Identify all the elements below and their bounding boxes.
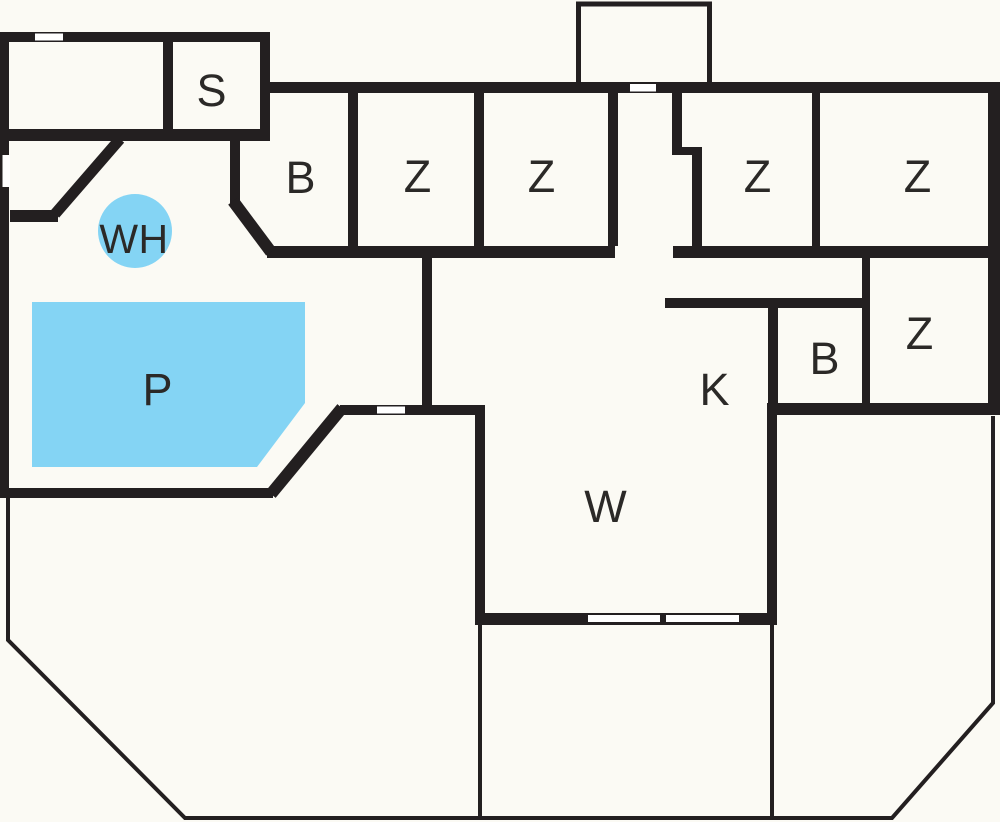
wall [768, 298, 778, 415]
wall [665, 298, 870, 308]
window-gap-living-right [666, 615, 739, 622]
wall [672, 93, 682, 155]
wall [692, 147, 702, 258]
room-label-z-right: Z [906, 308, 935, 359]
room-label-b-right: B [809, 333, 840, 384]
wall [673, 246, 1000, 258]
room-label-z-1: Z [404, 151, 433, 202]
wall [340, 405, 485, 415]
door-gap-top-left [35, 34, 63, 41]
room-label-w: W [584, 481, 627, 532]
wall [230, 141, 240, 205]
room-label-b-top: B [285, 152, 316, 203]
wall [348, 93, 358, 246]
floor-plan: S B Z Z Z Z WH P K B Z W [0, 0, 1000, 822]
room-label-k: K [699, 364, 730, 415]
window-gap-living-left [588, 615, 660, 622]
floor-plan-canvas: S B Z Z Z Z WH P K B Z W [0, 0, 1000, 822]
wall [10, 210, 58, 222]
door-gap-pool-terrace [377, 407, 405, 414]
wall [767, 403, 1000, 415]
wall [0, 129, 270, 141]
room-label-z-3: Z [744, 151, 773, 202]
wall [767, 415, 777, 625]
wall [862, 246, 870, 415]
wall [0, 488, 273, 498]
room-label-wh: WH [99, 216, 168, 262]
wall [475, 405, 485, 625]
room-label-z-4: Z [904, 151, 933, 202]
door-gap-left-wall [3, 155, 11, 187]
room-label-p: P [142, 364, 173, 415]
door-gap-main-entrance [630, 84, 656, 92]
wall [474, 93, 484, 246]
wall [812, 93, 820, 246]
room-label-z-2: Z [528, 151, 557, 202]
wall [267, 246, 615, 258]
wall [163, 42, 173, 141]
wall [422, 258, 432, 415]
wall [608, 93, 618, 246]
room-label-s: S [196, 65, 227, 116]
wall [0, 32, 9, 498]
